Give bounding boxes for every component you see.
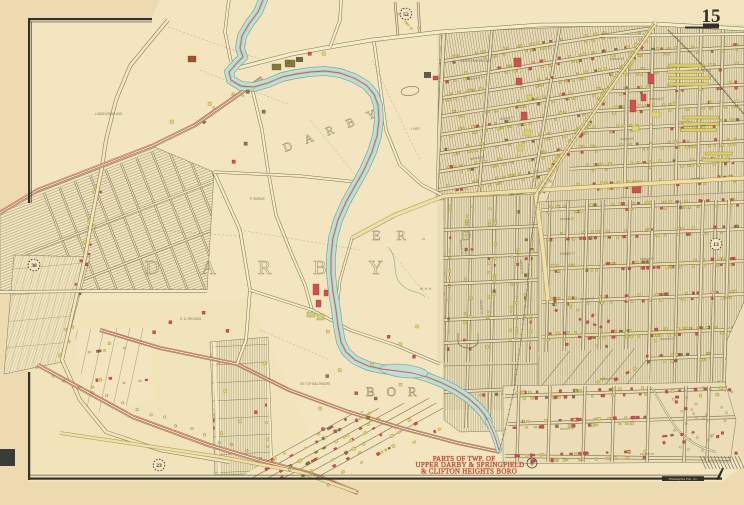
svg-text:W. H. H.: W. H. H. [420, 287, 432, 291]
svg-text:AVENUE ST: AVENUE ST [560, 216, 575, 221]
svg-text:AVENUE ST: AVENUE ST [640, 452, 655, 456]
svg-text:WM PASSMORE EST: WM PASSMORE EST [460, 59, 492, 63]
svg-text:AVENUE ST: AVENUE ST [690, 176, 705, 181]
svg-text:GARRETT: GARRETT [560, 252, 575, 256]
svg-text:AVENUE ST: AVENUE ST [580, 296, 595, 301]
svg-text:Philadelphia Pub. Co.: Philadelphia Pub. Co. [669, 477, 698, 481]
svg-text:AVENUE ST: AVENUE ST [560, 426, 575, 431]
svg-text:J. HEY: J. HEY [410, 127, 421, 131]
svg-text:LANSDOWNE AVE: LANSDOWNE AVE [95, 112, 122, 116]
svg-text:EST OF BALTIMORE: EST OF BALTIMORE [300, 382, 331, 386]
svg-text:AVENUE ST: AVENUE ST [610, 56, 625, 61]
svg-text:52: 52 [403, 12, 409, 18]
svg-text:ER. D: ER. D [372, 229, 487, 244]
svg-text:S. A. RHOADS: S. A. RHOADS [180, 317, 201, 321]
svg-text:AVENUE ST: AVENUE ST [660, 336, 675, 341]
svg-text:23: 23 [156, 463, 162, 469]
svg-text:P. BURNS: P. BURNS [250, 197, 265, 201]
svg-text:AVENUE ST: AVENUE ST [600, 376, 615, 381]
svg-text:& CLIFTON HEIGHTS BORO: & CLIFTON HEIGHTS BORO [421, 468, 517, 476]
svg-text:38: 38 [31, 263, 37, 269]
svg-text:DARBY: DARBY [145, 257, 425, 279]
svg-text:13: 13 [713, 242, 719, 248]
svg-text:BOR: BOR [366, 384, 429, 399]
svg-text:6: 6 [531, 462, 534, 468]
svg-text:AVENUE ST: AVENUE ST [640, 256, 655, 261]
svg-text:AVENUE ST: AVENUE ST [620, 136, 635, 141]
svg-text:AVENUE ST: AVENUE ST [650, 96, 665, 101]
